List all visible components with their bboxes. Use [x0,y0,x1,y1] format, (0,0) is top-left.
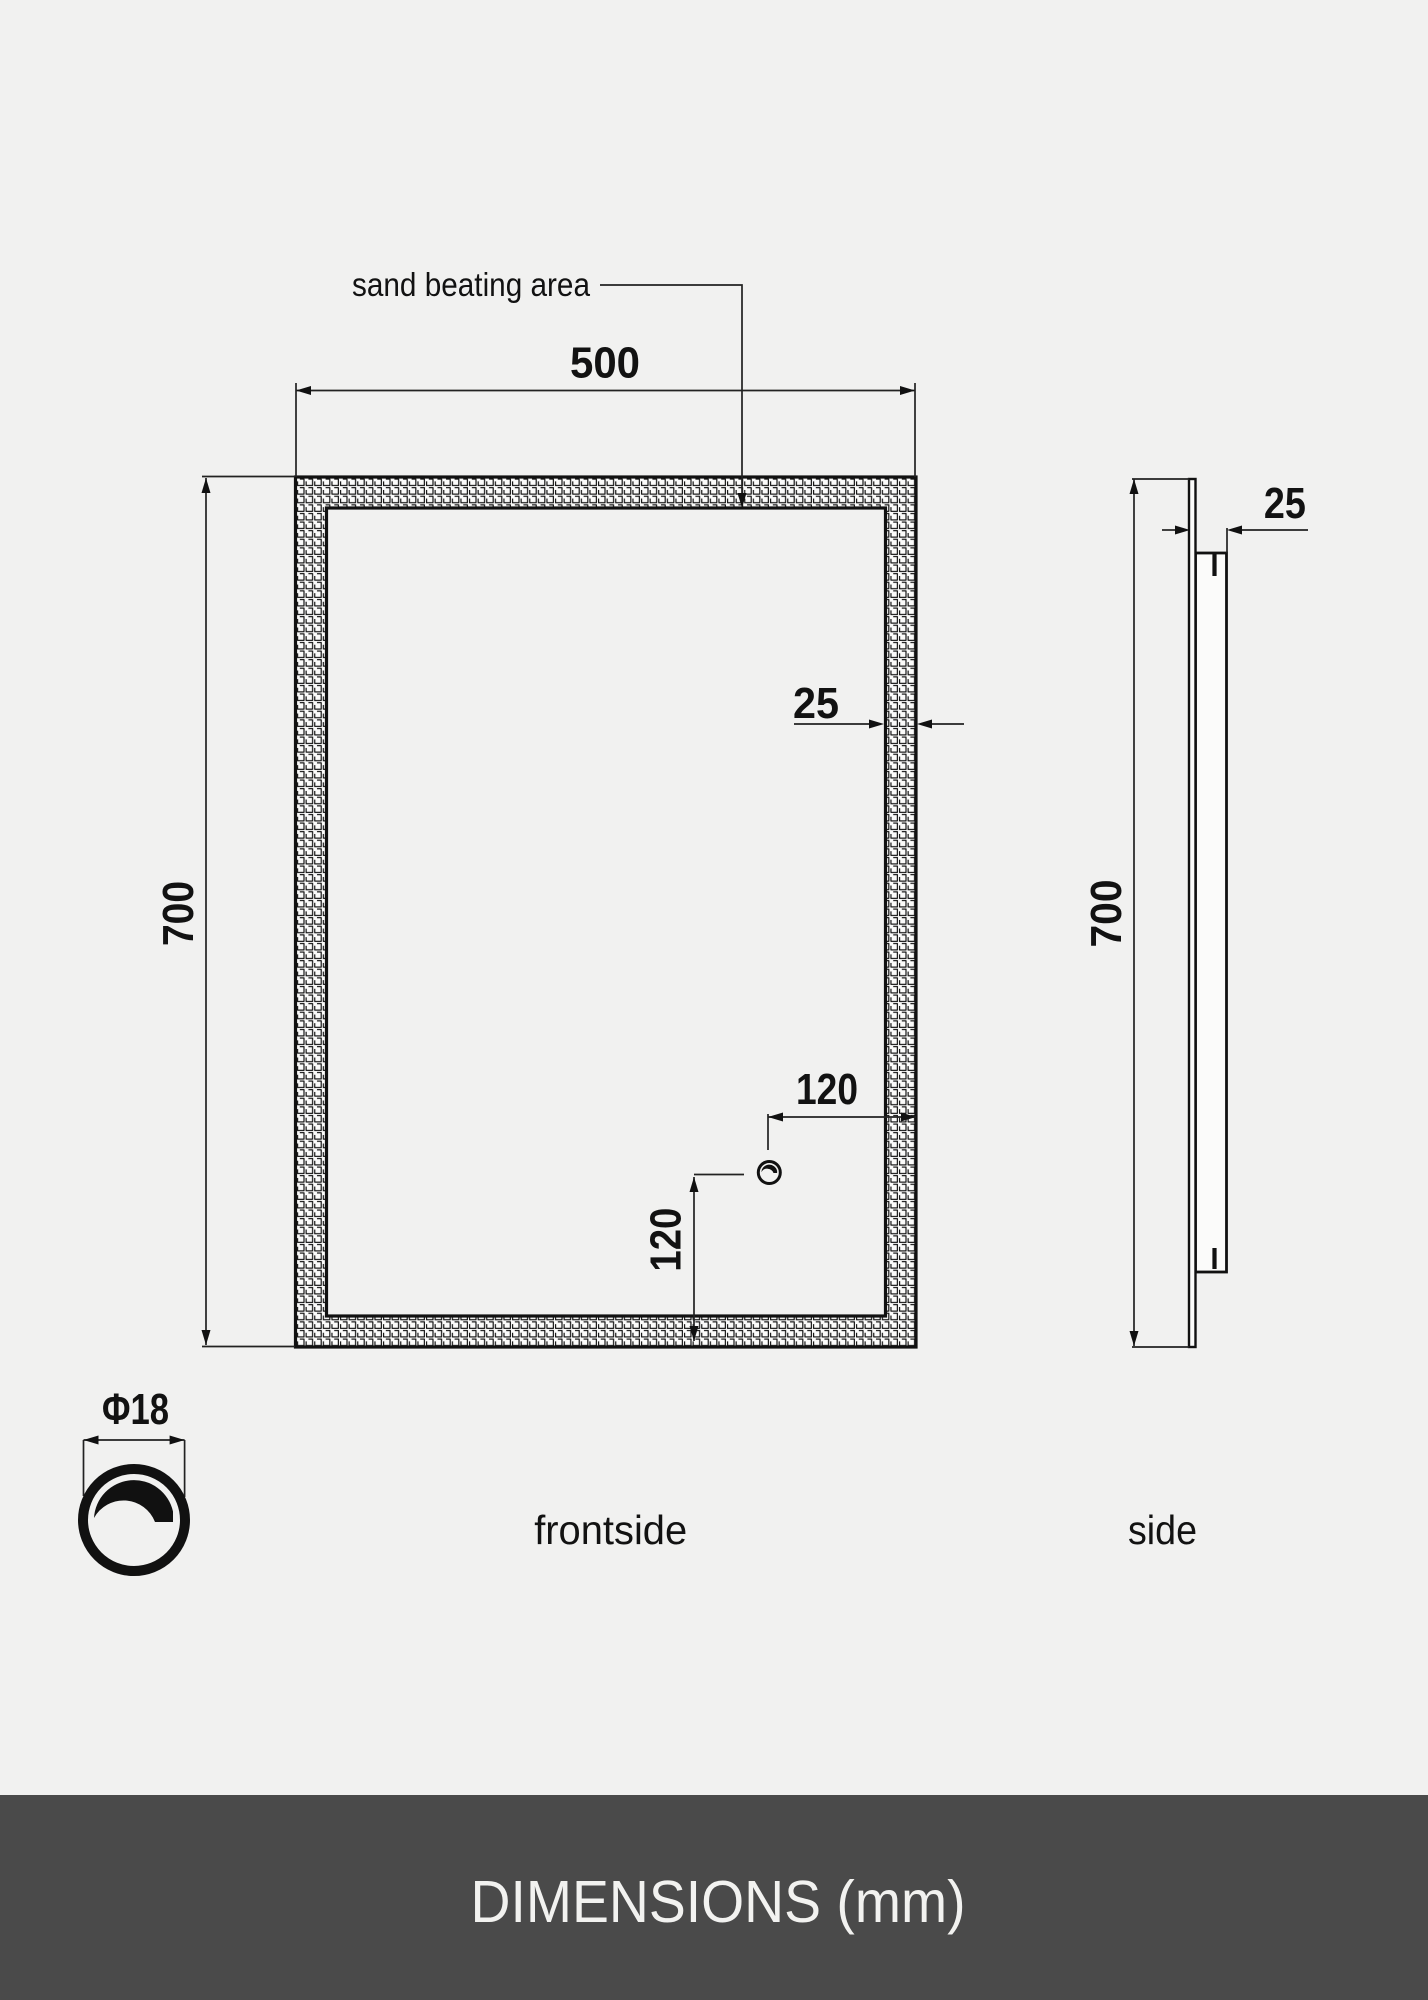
svg-text:700: 700 [154,881,203,946]
svg-text:700: 700 [1082,880,1131,948]
svg-text:25: 25 [793,679,839,728]
svg-text:Φ18: Φ18 [102,1385,169,1434]
svg-text:25: 25 [1264,479,1306,528]
svg-text:side: side [1128,1507,1197,1553]
svg-text:DIMENSIONS (mm): DIMENSIONS (mm) [471,1869,966,1935]
svg-text:frontside: frontside [534,1507,687,1553]
svg-text:120: 120 [642,1208,691,1272]
svg-text:500: 500 [570,338,640,387]
svg-text:sand beating area: sand beating area [352,266,591,303]
svg-text:120: 120 [796,1065,858,1114]
